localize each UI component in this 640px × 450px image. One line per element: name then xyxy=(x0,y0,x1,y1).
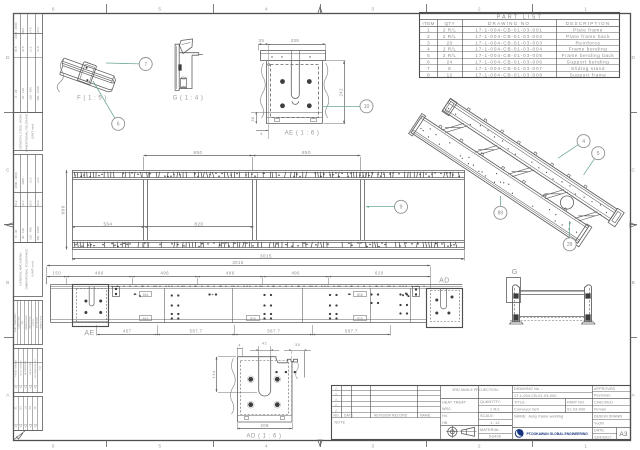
svg-text:2 R/L: 2 R/L xyxy=(443,28,456,33)
svg-text:PART NO.: PART NO. xyxy=(567,400,585,404)
svg-text:+4.0: +4.0 xyxy=(29,27,33,33)
svg-text:+3.0: +3.0 xyxy=(36,177,40,183)
svg-text:DESCRIPTION: DESCRIPTION xyxy=(566,21,611,26)
svg-text:208: 208 xyxy=(291,38,300,43)
svg-text:Frame bending: Frame bending xyxy=(569,47,608,52)
svg-text:DRAWING NO: DRAWING NO xyxy=(488,21,530,26)
svg-text:+5.0: +5.0 xyxy=(36,27,40,33)
svg-text:816: 816 xyxy=(143,293,149,297)
svg-text:6: 6 xyxy=(427,60,430,65)
svg-text:4: 4 xyxy=(265,444,268,450)
svg-text:2 R/L: 2 R/L xyxy=(443,34,456,39)
svg-text:PT.DOKAWAN GLOBAL ENGINEERING: PT.DOKAWAN GLOBAL ENGINEERING xyxy=(527,432,589,436)
svg-text:A: A xyxy=(6,393,10,399)
svg-text:30 - 120: 30 - 120 xyxy=(21,88,25,99)
svg-text:NAME:: NAME: xyxy=(514,415,527,419)
svg-text:HB.: HB. xyxy=(442,421,448,425)
svg-text:816: 816 xyxy=(250,317,256,321)
svg-text:±0.5: ±0.5 xyxy=(29,200,33,206)
svg-text:N4 N. HONING: N4 N. HONING xyxy=(20,360,22,375)
svg-text:Sliding stand: Sliding stand xyxy=(571,66,605,71)
svg-text:17-1-004-CB-01-03-006: 17-1-004-CB-01-03-006 xyxy=(475,60,543,65)
svg-text:2: 2 xyxy=(427,34,430,39)
svg-text:24: 24 xyxy=(447,60,453,65)
svg-text:5: 5 xyxy=(158,7,161,13)
svg-text:17-1-004-CB-01-03-000: 17-1-004-CB-01-03-000 xyxy=(514,394,556,398)
svg-text:3: 3 xyxy=(371,444,374,450)
svg-text:A: A xyxy=(632,393,636,399)
svg-text:AE ( 1 : 6 ): AE ( 1 : 6 ) xyxy=(285,131,320,137)
svg-text:±2.0: ±2.0 xyxy=(36,46,40,52)
svg-text:CHECKED: CHECKED xyxy=(594,401,613,405)
svg-text:0 - 30: 0 - 30 xyxy=(14,229,18,237)
svg-text:HEAT TREAT:: HEAT TREAT: xyxy=(442,400,467,404)
svg-text:TITLE :: TITLE : xyxy=(514,400,527,404)
svg-text:±0.3: ±0.3 xyxy=(21,200,25,206)
svg-text:Q.NITR: Q.NITR xyxy=(33,318,35,326)
svg-text:1 R/L: 1 R/L xyxy=(490,408,500,412)
svg-text:DATE:: DATE: xyxy=(594,429,605,433)
svg-text:9: 9 xyxy=(400,205,403,211)
svg-text:7: 7 xyxy=(427,66,430,71)
svg-text:29: 29 xyxy=(567,242,573,248)
svg-text:4000 -: 4000 - xyxy=(21,26,25,35)
svg-text:2: 2 xyxy=(478,444,481,450)
svg-text:816: 816 xyxy=(357,293,363,297)
svg-text:NITRIDING: NITRIDING xyxy=(37,317,39,328)
svg-text:DESIGN DRAWN: DESIGN DRAWN xyxy=(594,414,623,418)
svg-text:496: 496 xyxy=(95,271,104,276)
svg-text:HEAT TREATMENT: HEAT TREATMENT xyxy=(14,312,17,332)
svg-text:820: 820 xyxy=(194,221,203,226)
svg-text:Firman: Firman xyxy=(594,408,606,412)
svg-text:0 - 30: 0 - 30 xyxy=(14,89,18,97)
svg-text:±0.8: ±0.8 xyxy=(36,200,40,206)
svg-text:600: 600 xyxy=(61,205,66,214)
svg-text:89: 89 xyxy=(498,211,504,217)
svg-text:Reinforce: Reinforce xyxy=(575,40,600,45)
svg-text:Assy frame welding: Assy frame welding xyxy=(529,415,564,419)
svg-text:±0.8: ±0.8 xyxy=(21,46,25,52)
svg-text:42: 42 xyxy=(262,342,267,346)
svg-text:17-1-004-CB-01-03-002: 17-1-004-CB-01-03-002 xyxy=(475,34,543,39)
svg-text:36: 36 xyxy=(251,116,255,121)
svg-text:HV.: HV. xyxy=(442,414,448,418)
svg-text:Yudhi: Yudhi xyxy=(594,421,604,425)
svg-text:AD: AD xyxy=(439,278,450,285)
svg-text:G: G xyxy=(512,267,518,276)
svg-text:10: 10 xyxy=(364,104,370,110)
svg-text:35: 35 xyxy=(259,38,265,43)
svg-text:B: B xyxy=(632,280,636,286)
svg-text:Plate frame back: Plate frame back xyxy=(566,34,610,39)
svg-text:242: 242 xyxy=(339,88,344,97)
svg-text:457: 457 xyxy=(123,329,132,334)
svg-text:(UNIT mm): (UNIT mm) xyxy=(31,261,35,276)
svg-text:DIMENTIONAL TOLERANCE: DIMENTIONAL TOLERANCE xyxy=(25,249,29,290)
svg-text:6: 6 xyxy=(52,444,55,450)
svg-text:Support frame: Support frame xyxy=(570,72,607,77)
svg-text:QUANTITY:: QUANTITY: xyxy=(480,400,501,404)
svg-text:Plate frame: Plate frame xyxy=(573,28,603,33)
svg-text:+2.0: +2.0 xyxy=(29,177,33,183)
svg-text:D: D xyxy=(632,55,636,61)
svg-text:3: 3 xyxy=(371,7,374,13)
svg-text:6: 6 xyxy=(52,7,55,13)
svg-text:D: D xyxy=(6,55,10,61)
svg-text:4000 -: 4000 - xyxy=(21,176,25,185)
svg-text:6: 6 xyxy=(117,122,120,128)
svg-text:1: 1 xyxy=(584,444,587,450)
svg-text:Rochman: Rochman xyxy=(594,394,610,398)
svg-text:GENERAL MACHINING: GENERAL MACHINING xyxy=(19,252,23,286)
svg-text:ITEM: ITEM xyxy=(422,21,434,26)
svg-text:(UNIT mm): (UNIT mm) xyxy=(31,124,35,139)
svg-text:496: 496 xyxy=(161,271,170,276)
svg-text:150: 150 xyxy=(53,271,62,276)
svg-text:N10 MEDIUM CUT: N10 MEDIUM CUT xyxy=(35,358,37,377)
svg-text:DIMENTIONAL TOLERANCE: DIMENTIONAL TOLERANCE xyxy=(25,111,29,152)
svg-text:17-1-004-CB-01-03-008: 17-1-004-CB-01-03-008 xyxy=(475,72,543,77)
svg-text:17-1-004-CB-01-03-007: 17-1-004-CB-01-03-007 xyxy=(475,66,543,71)
svg-text:4: 4 xyxy=(582,139,585,145)
svg-text:620: 620 xyxy=(375,271,384,276)
svg-text:496: 496 xyxy=(226,271,235,276)
svg-text:NAME:: NAME: xyxy=(420,414,431,418)
svg-text:DATE: DATE xyxy=(344,414,354,418)
svg-text:7: 7 xyxy=(144,62,147,68)
svg-text:850: 850 xyxy=(193,150,202,155)
svg-text:5: 5 xyxy=(427,53,430,58)
svg-text:4: 4 xyxy=(260,132,263,136)
svg-text:17-1-004-CB-01-03-003: 17-1-004-CB-01-03-003 xyxy=(475,40,543,45)
svg-text:13/4/2017: 13/4/2017 xyxy=(594,435,611,439)
svg-text:587.7: 587.7 xyxy=(267,329,280,334)
svg-text:5: 5 xyxy=(597,151,600,157)
svg-text:17-1-004-CB-01-03-001: 17-1-004-CB-01-03-001 xyxy=(475,28,543,33)
svg-text:FINISH SYMBOL: FINISH SYMBOL xyxy=(16,359,18,377)
svg-text:35: 35 xyxy=(295,343,300,347)
svg-text:2000 - 4000: 2000 - 4000 xyxy=(14,172,18,188)
svg-text:3RD ANGLE PROJECTION :: 3RD ANGLE PROJECTION : xyxy=(452,388,499,392)
svg-text:AD ( 1 : 6 ): AD ( 1 : 6 ) xyxy=(246,434,281,440)
svg-text:C: C xyxy=(6,168,10,174)
svg-text:2 R/L: 2 R/L xyxy=(443,47,456,52)
svg-text:4: 4 xyxy=(265,7,268,13)
svg-text:850: 850 xyxy=(302,150,311,155)
svg-text:8: 8 xyxy=(448,66,451,71)
svg-text:17-1-004-CB-01-03-004: 17-1-004-CB-01-03-004 xyxy=(475,47,543,52)
svg-text:G ( 1 : 4 ): G ( 1 : 4 ) xyxy=(173,96,204,102)
svg-text:4: 4 xyxy=(427,47,430,52)
svg-text:C: C xyxy=(632,168,636,174)
svg-text:DRAWING No. :: DRAWING No. : xyxy=(514,387,543,391)
svg-text:3015: 3015 xyxy=(232,260,243,265)
svg-text:20: 20 xyxy=(447,40,453,45)
svg-text:30 - 120: 30 - 120 xyxy=(21,228,25,239)
svg-text:WRC.: WRC. xyxy=(442,407,452,411)
svg-text:8: 8 xyxy=(427,72,430,77)
svg-text:NOTE: NOTE xyxy=(335,420,346,424)
svg-text:SCALE:: SCALE: xyxy=(480,414,494,418)
svg-text:587.7: 587.7 xyxy=(190,329,203,334)
svg-text:816: 816 xyxy=(357,317,363,321)
svg-text:±0.2: ±0.2 xyxy=(14,200,18,206)
svg-text:1: 1 xyxy=(427,28,430,33)
svg-text:2 R/L: 2 R/L xyxy=(443,53,456,58)
svg-text:587.7: 587.7 xyxy=(345,329,358,334)
svg-text:A3: A3 xyxy=(619,431,628,438)
svg-text:120 - 400: 120 - 400 xyxy=(29,87,33,100)
svg-text:134: 134 xyxy=(211,370,216,378)
svg-text:208: 208 xyxy=(260,423,269,428)
svg-text:3015: 3015 xyxy=(260,253,272,258)
svg-text:INDUCTION: INDUCTION xyxy=(29,316,31,329)
svg-text:N8 M C FINE: N8 M C FINE xyxy=(30,361,32,375)
svg-text:12: 12 xyxy=(447,72,453,77)
svg-text:±0.5: ±0.5 xyxy=(14,46,18,52)
svg-text:GENERAL STEEL WORK: GENERAL STEEL WORK xyxy=(19,113,23,150)
svg-text:4: 4 xyxy=(238,344,241,348)
svg-text:400 - 1000: 400 - 1000 xyxy=(36,86,40,101)
svg-text:816: 816 xyxy=(143,317,149,321)
svg-text:REVISION RECORD: REVISION RECORD xyxy=(374,414,408,418)
svg-text:NO.: NO. xyxy=(334,414,340,418)
svg-text:SS400: SS400 xyxy=(489,435,501,439)
svg-text:±1.2: ±1.2 xyxy=(29,46,33,52)
svg-text:17-1-004-CB-01-03-005: 17-1-004-CB-01-03-005 xyxy=(475,53,543,58)
svg-text:CONDITION: CONDITION xyxy=(19,316,21,329)
svg-text:01-03-000: 01-03-000 xyxy=(567,408,585,412)
svg-text:1: 12: 1: 12 xyxy=(490,421,499,425)
svg-text:496: 496 xyxy=(291,271,300,276)
svg-text:5: 5 xyxy=(158,444,161,450)
svg-text:2000 - 4000: 2000 - 4000 xyxy=(14,22,18,38)
svg-text:CARBURIZING: CARBURIZING xyxy=(25,315,28,330)
svg-text:HARD N ESS: HARD N ESS xyxy=(39,315,42,329)
svg-text:Frame bending back: Frame bending back xyxy=(562,53,615,58)
svg-text:400 - 1000: 400 - 1000 xyxy=(36,226,40,241)
svg-text:2: 2 xyxy=(478,7,481,13)
svg-text:120 - 400: 120 - 400 xyxy=(29,227,33,240)
svg-text:B: B xyxy=(6,280,10,286)
svg-text:APPROVED: APPROVED xyxy=(594,387,616,391)
svg-text:3: 3 xyxy=(427,40,430,45)
svg-text:564: 564 xyxy=(103,221,112,226)
svg-text:1: 1 xyxy=(584,7,587,13)
svg-text:QTY: QTY xyxy=(444,21,454,26)
svg-text:Conveyor belt: Conveyor belt xyxy=(514,408,540,412)
svg-text:N6 GRINDING: N6 GRINDING xyxy=(25,361,27,376)
svg-text:AE: AE xyxy=(84,330,94,337)
svg-text:MATERIAL:: MATERIAL: xyxy=(480,428,501,432)
svg-text:Support bending: Support bending xyxy=(567,60,610,65)
